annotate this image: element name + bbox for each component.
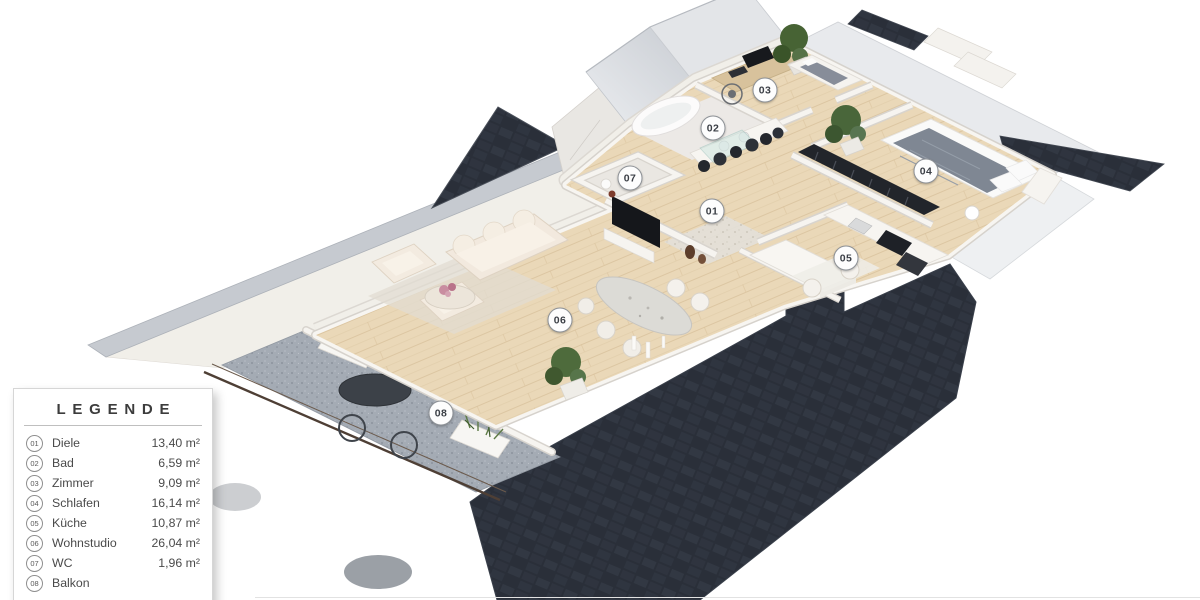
room-marker-06: 06 <box>548 308 573 333</box>
legend-item-area: 10,87 m² <box>151 516 200 530</box>
legend-panel: LEGENDE 01Diele13,40 m²02Bad6,59 m²03Zim… <box>13 388 213 600</box>
legend-row-03: 03Zimmer9,09 m² <box>26 473 200 493</box>
legend-item-number: 06 <box>26 535 43 552</box>
legend-item-number: 02 <box>26 455 43 472</box>
legend-item-name: Bad <box>52 456 158 470</box>
legend-row-02: 02Bad6,59 m² <box>26 453 200 473</box>
legend-item-name: Wohnstudio <box>52 536 151 550</box>
legend-item-area: 26,04 m² <box>151 536 200 550</box>
room-marker-02: 02 <box>701 116 726 141</box>
legend-item-area: 1,96 m² <box>158 556 200 570</box>
candle <box>646 342 650 358</box>
legend-item-number: 01 <box>26 435 43 452</box>
vase <box>698 254 706 264</box>
image-bottom-edge <box>255 597 1200 598</box>
lounge-chair <box>209 483 261 511</box>
vase <box>685 245 695 259</box>
dining-chair <box>691 293 709 311</box>
legend-item-name: Zimmer <box>52 476 158 490</box>
legend-rows: 01Diele13,40 m²02Bad6,59 m²03Zimmer9,09 … <box>26 433 200 593</box>
legend-row-01: 01Diele13,40 m² <box>26 433 200 453</box>
room-marker-07: 07 <box>618 166 643 191</box>
vase <box>609 191 616 198</box>
legend-title: LEGENDE <box>26 401 200 418</box>
side-table <box>965 206 979 220</box>
lounge-chair <box>344 555 412 589</box>
bar-stool <box>597 321 615 339</box>
room-marker-03: 03 <box>753 78 778 103</box>
candle <box>632 336 636 350</box>
legend-item-area: 13,40 m² <box>151 436 200 450</box>
room-marker-01: 01 <box>700 199 725 224</box>
room-marker-04: 04 <box>914 159 939 184</box>
candle <box>662 336 665 348</box>
dining-chair <box>667 279 685 297</box>
legend-item-number: 05 <box>26 515 43 532</box>
legend-item-name: WC <box>52 556 158 570</box>
legend-divider <box>24 425 202 426</box>
legend-row-07: 07WC1,96 m² <box>26 553 200 573</box>
legend-row-06: 06Wohnstudio26,04 m² <box>26 533 200 553</box>
legend-item-number: 03 <box>26 475 43 492</box>
legend-row-08: 08Balkon <box>26 573 200 593</box>
legend-item-name: Schlafen <box>52 496 151 510</box>
legend-item-name: Diele <box>52 436 151 450</box>
room-marker-05: 05 <box>834 246 859 271</box>
legend-item-area: 9,09 m² <box>158 476 200 490</box>
legend-item-name: Küche <box>52 516 151 530</box>
legend-item-name: Balkon <box>52 576 200 590</box>
legend-item-area: 6,59 m² <box>158 456 200 470</box>
bar-stool <box>578 298 594 314</box>
chair <box>803 279 821 297</box>
legend-item-area: 16,14 m² <box>151 496 200 510</box>
floorplan-page: 0102030405060708 LEGENDE 01Diele13,40 m²… <box>0 0 1200 600</box>
legend-item-number: 07 <box>26 555 43 572</box>
legend-row-05: 05Küche10,87 m² <box>26 513 200 533</box>
legend-row-04: 04Schlafen16,14 m² <box>26 493 200 513</box>
room-marker-08: 08 <box>429 401 454 426</box>
wash-basin <box>601 179 611 189</box>
legend-item-number: 04 <box>26 495 43 512</box>
legend-item-number: 08 <box>26 575 43 592</box>
